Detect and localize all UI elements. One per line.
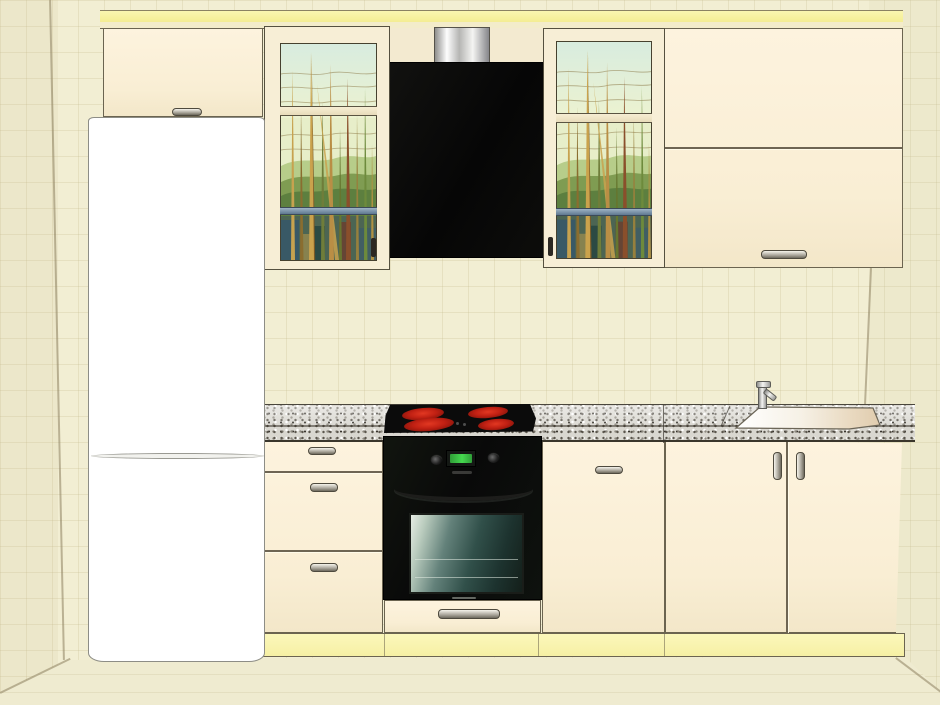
oven-brand-text (452, 597, 476, 599)
sink-base-cabinet (665, 440, 903, 633)
flap-door-divider (665, 147, 902, 149)
floor (0, 656, 940, 705)
cooker-hood (383, 62, 545, 258)
wall-cabinet-over-fridge (103, 28, 263, 117)
left-wall (0, 0, 58, 705)
oven-knob-left (431, 456, 442, 465)
inset-sink (733, 405, 883, 431)
glass-door-mullion (280, 106, 377, 116)
drawer-handle (438, 609, 500, 619)
cooktop-control-dot (456, 422, 459, 425)
burner-back-right (468, 405, 509, 419)
reed-artwork-glass (557, 42, 652, 259)
glass-door-handle (548, 237, 553, 256)
plinth-seam (538, 634, 539, 656)
glass-cabinet-left (264, 26, 390, 270)
oven-door-handle (394, 485, 533, 501)
ceramic-cooktop (384, 404, 536, 433)
built-in-oven (383, 436, 542, 600)
drawer-divider (258, 550, 382, 552)
door-handle (796, 452, 805, 480)
glass-door-handle (371, 238, 376, 257)
oven-knob-right (488, 454, 499, 463)
oven-display (446, 450, 476, 467)
double-flap-wall-cabinet (664, 28, 903, 268)
refrigerator (88, 117, 265, 662)
oven-door-window (409, 513, 524, 594)
glass-shelf-bar (280, 207, 377, 215)
cooktop-control-dot (463, 423, 466, 426)
oven-lower-drawer (384, 600, 541, 633)
plinth (262, 633, 905, 657)
door-handle (773, 452, 782, 480)
fridge-door-split (91, 453, 264, 459)
plinth-seam (664, 634, 665, 656)
door-handle (595, 466, 623, 474)
hood-chimney-duct (434, 27, 490, 64)
counter-seam (663, 405, 664, 443)
reed-artwork-glass (281, 44, 376, 260)
plinth-seam (384, 634, 385, 656)
kitchen-render (0, 0, 940, 705)
drawer-unit (257, 440, 383, 633)
oven-button-row (452, 471, 472, 474)
burner-front-right (478, 417, 515, 431)
drawer-divider (258, 471, 382, 473)
cabinet-handle (761, 250, 807, 259)
drawer-handle (308, 447, 336, 455)
cabinet-handle (172, 108, 202, 116)
door-gap (786, 441, 788, 634)
glass-door-mullion (556, 113, 652, 123)
drawer-handle (310, 563, 338, 572)
drawer-handle (310, 483, 338, 492)
glass-shelf-bar (556, 208, 652, 216)
base-door-cabinet (542, 440, 665, 633)
glass-cabinet-right (543, 28, 665, 268)
